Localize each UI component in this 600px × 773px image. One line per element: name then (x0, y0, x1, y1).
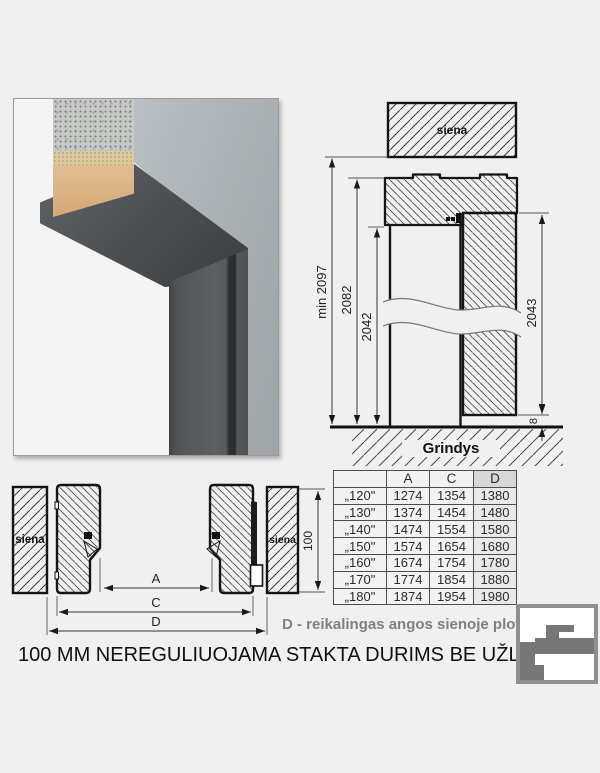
table-row: „140" 1474 1554 1580 (334, 521, 517, 538)
logo-notch-shape (535, 654, 544, 665)
cell-a: 1774 (387, 571, 430, 588)
header-size (334, 471, 387, 488)
d-dimension-note: D - reikalingas angos sienoje plotis (282, 616, 547, 633)
table-row: „170" 1774 1854 1880 (334, 571, 517, 588)
lock-strike-plate (251, 565, 263, 586)
cell-c: 1654 (430, 538, 474, 555)
cell-d: 1680 (474, 538, 517, 555)
cell-c: 1454 (430, 504, 474, 521)
wall-label: siena (437, 123, 468, 137)
size-table-header-row: A C D (334, 471, 517, 488)
table-row: „120" 1274 1354 1380 (334, 487, 517, 504)
cell-size: „150" (334, 538, 387, 555)
cell-a: 1474 (387, 521, 430, 538)
cell-c: 1354 (430, 487, 474, 504)
cell-d: 1880 (474, 571, 517, 588)
header-d: D (474, 471, 517, 488)
dim-opening-label: 2042 (359, 313, 374, 342)
top-section-drawing: siena siena (13, 485, 325, 635)
spec-sheet-page: siena Grindys (0, 0, 600, 773)
table-row: „180" 1874 1954 1980 (334, 588, 517, 605)
cell-a: 1674 (387, 554, 430, 571)
seal-left (84, 532, 92, 539)
cell-a: 1274 (387, 487, 430, 504)
size-table: A C D „120" 1274 1354 1380 „130" 1374 14… (333, 470, 517, 605)
cell-c: 1754 (430, 554, 474, 571)
dim-floor-gap-label: 8 (528, 418, 540, 424)
dim-frame-outer-label: 2082 (339, 286, 354, 315)
cell-size: „160" (334, 554, 387, 571)
side-section-drawing: siena Grindys (314, 103, 563, 466)
dim-leaf-height-label: 2043 (524, 299, 539, 328)
wall-label-left: siena (15, 534, 45, 546)
table-row: „130" 1374 1454 1480 (334, 504, 517, 521)
table-row: „150" 1574 1654 1680 (334, 538, 517, 555)
wall-label-right: siena (269, 534, 296, 546)
page-title: 100 MM NEREGULIUOJAMA STAKTA DURIMS BE U… (18, 644, 514, 667)
cell-size: „180" (334, 588, 387, 605)
dim-d-label: D (151, 614, 160, 629)
cell-a: 1374 (387, 504, 430, 521)
door-leaf-edge (251, 502, 257, 565)
dim-c-label: C (151, 595, 160, 610)
table-row: „160" 1674 1754 1780 (334, 554, 517, 571)
header-a: A (387, 471, 430, 488)
dim-min-height-label: min 2097 (314, 265, 329, 318)
seal-right (212, 532, 220, 539)
frame-profile-left (57, 485, 100, 593)
cell-size: „140" (334, 521, 387, 538)
header-c: C (430, 471, 474, 488)
cell-size: „130" (334, 504, 387, 521)
cell-a: 1574 (387, 538, 430, 555)
dim-a-label: A (152, 571, 161, 586)
cell-c: 1954 (430, 588, 474, 605)
cell-c: 1554 (430, 521, 474, 538)
cell-a: 1874 (387, 588, 430, 605)
logo-arm-shape (546, 625, 574, 632)
cell-d: 1580 (474, 521, 517, 538)
floor-label: Grindys (423, 440, 480, 457)
cell-size: „120" (334, 487, 387, 504)
cell-c: 1854 (430, 571, 474, 588)
cell-d: 1380 (474, 487, 517, 504)
cell-size: „170" (334, 571, 387, 588)
brand-logo-icon (516, 604, 598, 684)
cell-d: 1480 (474, 504, 517, 521)
cell-d: 1780 (474, 554, 517, 571)
dim-depth-label: 100 (301, 531, 315, 551)
cell-d: 1980 (474, 588, 517, 605)
